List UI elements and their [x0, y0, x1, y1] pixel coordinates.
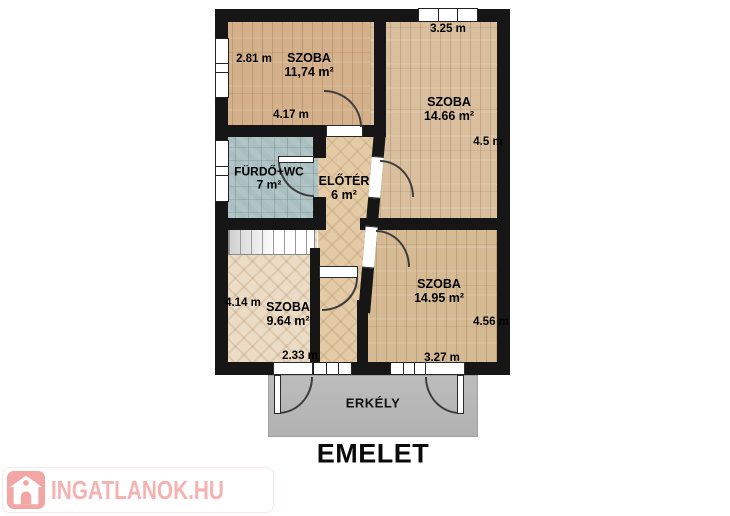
watermark-logo: INGATLANOK.HU: [2, 467, 274, 513]
room-name: SZOBA: [424, 95, 474, 109]
room-area: 14.95 m²: [414, 291, 464, 305]
dim-room-top-right-width: 3.25 m: [430, 23, 466, 35]
room-label-hallway: ELŐTÉR 6 m²: [319, 174, 370, 202]
dim-room-top-right-height: 4.5 m: [473, 136, 502, 148]
window-left-bathroom: [215, 140, 229, 202]
door-opening-balcony-left: [273, 362, 313, 375]
room-area: 11,74 m²: [284, 65, 333, 79]
room-label-bathroom: FÜRDŐ+WC 7 m²: [234, 166, 304, 193]
room-area: 6 m²: [319, 188, 370, 202]
room-name: ELŐTÉR: [319, 174, 370, 188]
room-name: SZOBA: [266, 300, 310, 314]
dim-room-top-left-width: 4.17 m: [273, 109, 309, 121]
balcony-label: ERKÉLY: [346, 396, 401, 411]
dim-room-top-left-height: 2.81 m: [236, 53, 272, 65]
door-leaf-bathroom: [278, 156, 314, 163]
room-label-top-right: SZOBA 14.66 m²: [424, 95, 474, 123]
dim-room-bottom-left-height: 4.14 m: [225, 297, 261, 309]
dim-room-bottom-right-width: 3.27 m: [424, 352, 460, 364]
door-leaf-balcony-left: [274, 375, 281, 414]
room-name: FÜRDŐ+WC: [234, 166, 304, 179]
window-bottom-hallway: [313, 362, 352, 375]
door-leaf-balcony-right: [457, 375, 464, 414]
room-label-bottom-left: SZOBA 9.64 m²: [266, 300, 310, 328]
dim-room-bottom-left-width: 2.33 m: [282, 350, 318, 362]
wall-between-right-rooms: [360, 218, 500, 230]
door-opening-hallway-lower: [319, 266, 358, 278]
room-label-bottom-right: SZOBA 14.95 m²: [414, 277, 464, 305]
wall-bottom-segment: [464, 362, 510, 375]
room-name: SZOBA: [414, 277, 464, 291]
wall-bottom-segment: [215, 362, 275, 375]
wall-below-room-top-left: [215, 125, 326, 137]
window-left-room-top-left: [215, 38, 229, 98]
floor-room-top-right: [370, 15, 504, 233]
room-name: SZOBA: [284, 51, 333, 65]
window-bottom-room-bottom-right: [390, 362, 428, 375]
wall-bathroom-bottom: [228, 218, 326, 230]
floorplan-image: SZOBA 11,74 m² SZOBA 14.66 m² FÜRDŐ+WC 7…: [0, 0, 730, 516]
dim-room-bottom-right-height: 4.56 m: [473, 316, 509, 328]
floor-title: EMELET: [317, 439, 430, 470]
watermark-brand-text: INGATLANOK.HU: [51, 475, 224, 506]
room-area: 7 m²: [234, 179, 304, 192]
room-area: 14.66 m²: [424, 109, 474, 123]
wall-between-top-rooms: [374, 9, 386, 137]
wall-bathroom-right: [313, 125, 326, 158]
house-icon: [7, 471, 45, 509]
window-top-room-top-right: [418, 8, 478, 22]
room-area: 9.64 m²: [266, 314, 310, 328]
staircase: [228, 228, 315, 255]
room-label-top-left: SZOBA 11,74 m²: [284, 51, 333, 79]
